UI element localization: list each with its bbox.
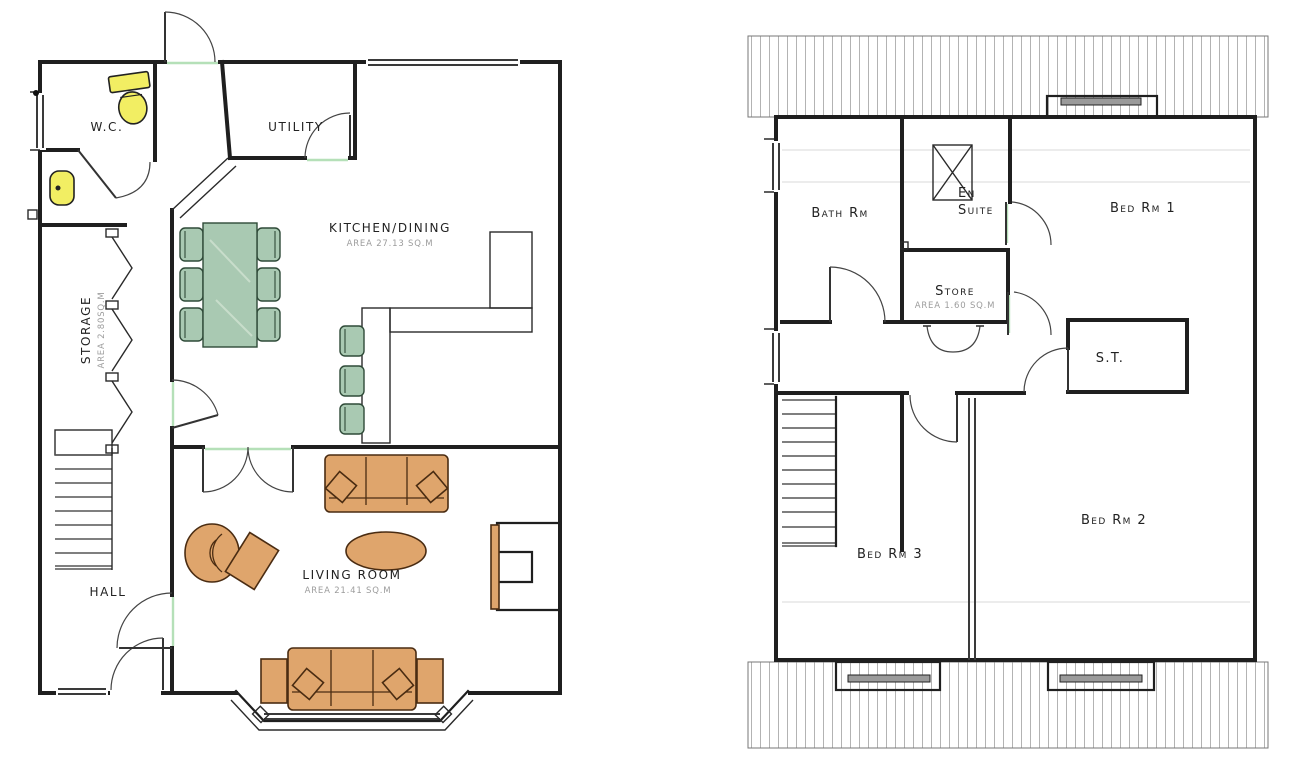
room-area-kitchen: AREA 27.13 SQ.M: [347, 239, 434, 249]
dining-chair: [180, 268, 203, 301]
storage-folding-doors: [106, 229, 132, 453]
room-area-living: AREA 21.41 SQ.M: [305, 586, 392, 596]
bath-window: [770, 141, 782, 192]
wall-marker: [33, 90, 39, 96]
coffee-table: [346, 532, 426, 570]
bar-stool: [340, 366, 364, 396]
room-label-wc: W.C.: [91, 120, 124, 134]
landing-window: [770, 331, 782, 384]
tv-board: [491, 525, 499, 609]
room-area-storage: AREA 2.80SQ.M: [97, 291, 107, 368]
hand-basin: [50, 171, 74, 205]
dining-chair: [257, 308, 280, 341]
ground-floor-plan: W.C. UTILITY KITCHEN/DINING AREA 27.13 S…: [28, 12, 560, 730]
first-floor-walls: [764, 117, 1255, 660]
room-label-utility: UTILITY: [268, 120, 324, 134]
room-label-bed1: Bed Rm 1: [1110, 201, 1176, 216]
room-label-ensuite-line1: En: [958, 186, 976, 201]
dining-furniture: [180, 223, 364, 434]
room-label-store: Store: [935, 284, 975, 299]
sofa-bay: [288, 648, 416, 710]
roof-band-top: [748, 36, 1268, 117]
store-double-doors: [923, 326, 984, 352]
sofa-top: [325, 455, 448, 512]
hall-kitchen-door: [172, 415, 218, 428]
room-label-bath: Bath Rm: [811, 206, 868, 221]
dormer-window: [1060, 675, 1142, 682]
roof-band-bottom: [748, 662, 1268, 748]
room-label-living: LIVING ROOM: [302, 568, 401, 582]
dining-chair: [257, 268, 280, 301]
room-label-hall: HALL: [89, 585, 126, 599]
floorplan-canvas: W.C. UTILITY KITCHEN/DINING AREA 27.13 S…: [0, 0, 1299, 779]
ground-floor-stairs: [55, 430, 112, 570]
dining-chair: [180, 308, 203, 341]
room-label-bed2: Bed Rm 2: [1081, 513, 1147, 528]
room-label-storage: STORAGE: [79, 296, 93, 364]
room-label-kitchen: KITCHEN/DINING: [329, 221, 451, 235]
side-table: [261, 659, 287, 703]
dormer-window: [1061, 98, 1141, 105]
room-area-store: AREA 1.60 SQ.M: [915, 301, 996, 311]
wc-window: [34, 93, 46, 150]
dining-chair: [257, 228, 280, 261]
toilet: [108, 71, 155, 126]
first-floor-stairs: [782, 397, 836, 546]
room-label-bed3: Bed Rm 3: [857, 547, 923, 562]
room-label-ensuite-line2: Suite: [958, 203, 994, 218]
living-furniture: [185, 455, 499, 710]
dormer-window: [848, 675, 930, 682]
wall-duct: [28, 210, 37, 219]
room-label-st: S.T.: [1096, 351, 1125, 366]
bathroom-fixtures: [50, 71, 155, 205]
side-table: [417, 659, 443, 703]
armchair: [185, 524, 279, 590]
floorplan-drawing: W.C. UTILITY KITCHEN/DINING AREA 27.13 S…: [0, 0, 1299, 779]
bar-stool: [340, 404, 364, 434]
wc-door: [78, 150, 116, 198]
kitchen-counter: [362, 232, 532, 443]
ground-floor-windows: [28, 57, 520, 697]
first-floor-plan: Bath Rm En Suite Bed Rm 1 Store AREA 1.6…: [748, 36, 1268, 748]
ground-floor-walls: [40, 62, 560, 730]
dining-chair: [180, 228, 203, 261]
first-floor-labels: Bath Rm En Suite Bed Rm 1 Store AREA 1.6…: [811, 186, 1176, 562]
bar-stool: [340, 326, 364, 356]
